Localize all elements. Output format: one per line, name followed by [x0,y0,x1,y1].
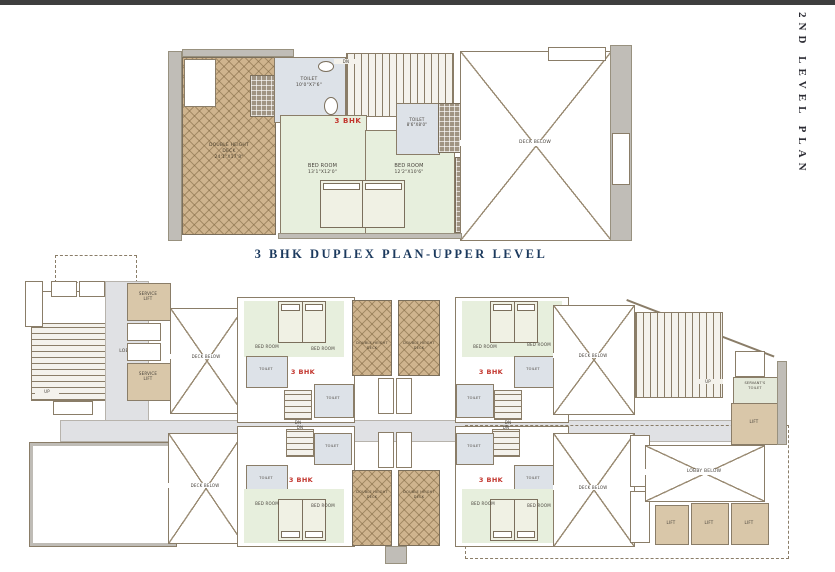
bedroom-text: BED ROOM [473,344,497,349]
shaft-window [396,378,412,414]
dashed-boundary-top-left [55,255,137,283]
staircase-dn [286,429,314,457]
deck-below-text: DECK BELOW [191,483,220,488]
lift-text: LIFT [705,520,714,525]
toilet-1-dim: 10'0"X7'6" [274,83,344,89]
second-level-plan: UP LOBBY SERVICE LIFT SERVICE LIFT DECK … [25,253,791,568]
lift-3-label: LIFT [731,520,767,525]
deck-text: DECK [352,495,392,500]
bedroom-text: BED ROOM [311,503,335,508]
bed [321,181,362,227]
unit-text: 3 BHK [479,476,503,484]
bed [514,302,538,342]
staircase-dn [492,429,520,457]
toilet-label: TOILET [514,476,552,481]
toilet-2 [396,103,440,155]
deck-below-text: DECK BELOW [519,140,551,145]
page-top-border [0,0,835,5]
central-stub-wall [385,546,407,564]
double-height-deck [398,300,440,376]
deck-below-top-left [170,308,244,414]
deck-dim: 24'1"X17'8" [182,155,276,161]
double-height-deck [352,470,392,546]
window [735,351,765,377]
unit-text: 3 BHK [335,117,362,125]
up-label-right: UP [693,379,723,384]
toilet-text: TOILET [326,396,339,400]
deck-below-top-right [553,305,635,415]
unit-3bhk-bottom-left: DN TOILET TOILET 3 BHK BED ROOM BED ROOM [237,426,355,547]
bedroom-text: BED ROOM [255,501,279,506]
wall-bottom [278,233,462,239]
dh-text: DOUBLE HEIGHT [398,341,440,346]
toilet-1-label: TOILET 10'0"X7'6" [274,77,344,89]
toilet-label: TOILET [456,444,492,449]
wall-top [182,49,294,57]
double-height-deck-label: DOUBLE HEIGHT DECK [352,490,392,499]
shaft-window [127,343,161,361]
bedroom-label: BED ROOM [296,503,350,508]
service-lift-1-label: SERVICE LIFT [127,291,169,301]
toilet-label: TOILET [514,367,552,372]
servants-toilet-label: SERVANT'S TOILET [733,381,777,390]
toilet [314,433,352,465]
staircase-dn [284,390,312,420]
shaft-window [378,432,394,468]
wall-left [168,51,182,241]
window-right [612,133,630,185]
unit-3bhk-top-left: BED ROOM BED ROOM TOILET 3 BHK TOILET DN [237,297,355,423]
bedroom-text: BED ROOM [527,342,551,347]
toilet [456,384,494,418]
window [79,281,105,297]
unit-label: 3 BHK [276,476,326,484]
lift-1-label: LIFT [655,520,687,525]
deck-below-void [460,51,612,241]
lift-text: LIFT [127,376,169,381]
dn-text: DN [297,425,303,430]
unit-text: 3 BHK [291,368,315,376]
dn-label: DN [334,59,358,64]
toilet-fixture [318,61,334,72]
service-lift-2 [127,363,171,401]
lift-text: LIFT [750,419,759,424]
bedroom-2-dim: 12'2"X10'6" [365,170,453,176]
window-top-right [548,47,606,61]
bedroom-label: BED ROOM [458,344,512,349]
lobby-below-label: LOBBY BELOW [645,469,763,475]
toilet-label: TOILET [314,444,350,449]
bedroom-label: BED ROOM [456,501,510,506]
deck-below-text: DECK BELOW [579,353,608,358]
bed [491,302,514,342]
upper-level-plan: DOUBLE HEIGHT DECK 24'1"X17'8" TOILET 10… [168,45,634,245]
bedroom-label: BED ROOM [240,501,294,506]
double-height-deck [398,470,440,546]
toilet [314,384,354,418]
sink-fixture [324,97,338,115]
beds-upper [320,180,405,228]
bed [279,302,302,342]
dn-text: DN [343,59,349,64]
up-label-left: UP [35,389,59,394]
dh-text: DOUBLE HEIGHT [352,341,392,346]
window [51,281,77,297]
shaft-window [396,432,412,468]
bedroom-label: BED ROOM [296,346,350,351]
bedroom-1-dim: 13'1"X12'0" [280,170,365,176]
unit-label: 3 BHK [466,476,516,484]
lift-text: LIFT [745,520,754,525]
dn-label: DN [492,425,520,430]
double-height-deck-label: DOUBLE HEIGHT DECK 24'1"X17'8" [182,143,276,161]
bed [302,302,326,342]
up-text: UP [705,379,711,384]
dh-text: DOUBLE HEIGHT [352,490,392,495]
deck-text: DECK [398,346,440,351]
deck-below-bottom-right-label: DECK BELOW [553,485,633,490]
service-lift-1 [127,283,171,321]
bedroom-text: BED ROOM [255,344,279,349]
window [25,281,43,327]
bedroom-text: BED ROOM [527,503,551,508]
toilet-text: TOILET [526,476,539,480]
double-height-deck [352,300,392,376]
double-height-deck-label: DOUBLE HEIGHT DECK [352,341,392,350]
deck-text: DECK [352,346,392,351]
bedroom-label: BED ROOM [240,344,294,349]
window-top-left [184,59,216,107]
dn-text: DN [503,425,509,430]
unit-text: 3 BHK [479,368,503,376]
bed [362,181,404,227]
staircase-dn [494,390,522,420]
window [53,401,93,415]
deck-below-text: DECK BELOW [579,485,608,490]
toilet-label: TOILET [456,396,492,401]
toilet-label: TOILET [314,396,352,401]
lift-2-label: LIFT [691,520,727,525]
dn-label: DN [286,425,314,430]
shaft-window [378,378,394,414]
toilet-text: TOILET [467,396,480,400]
beds [278,301,326,343]
bedroom-1-label: BED ROOM 13'1"X12'0" [280,163,365,175]
deck-text: DECK [398,495,440,500]
deck-below-top-right-label: DECK BELOW [553,353,633,358]
side-title: 2ND LEVEL PLAN [796,12,808,182]
toilet [514,356,554,388]
unit-label: 3 BHK [278,368,328,376]
toilet-text: TOILET [325,444,338,448]
bedroom-text: BED ROOM [311,346,335,351]
toilet-2-dim: 8'6"X8'0" [396,122,438,127]
deck-below-top-left-label: DECK BELOW [170,354,242,359]
wall-right-edge [777,361,787,445]
deck-below-label: DECK BELOW [460,140,610,146]
dh-text: DOUBLE HEIGHT [398,490,440,495]
toilet-text: TOILET [733,386,777,391]
lift-right-label: LIFT [731,419,777,424]
up-text: UP [44,389,50,394]
unit-3bhk-top-right: BED ROOM BED ROOM TOILET 3 BHK TOILET DN [455,297,569,423]
deck-below-bottom-left-label: DECK BELOW [168,483,242,488]
unit-label: 3 BHK [466,368,516,376]
lobby-below-text: LOBBY BELOW [687,469,721,474]
toilet [456,433,494,465]
unit-3bhk-bottom-right: DN TOILET TOILET 3 BHK BED ROOM BED ROOM [455,426,569,547]
lift-text: LIFT [667,520,676,525]
service-lift-2-label: SERVICE LIFT [127,371,169,381]
unit-text: 3 BHK [289,476,313,484]
deck-below-text: DECK BELOW [192,354,221,359]
bedroom-2-label: BED ROOM 12'2"X10'6" [365,163,453,175]
deck-below-bottom-left [168,433,244,544]
lift-text: LIFT [127,296,169,301]
toilet-text: TOILET [526,367,539,371]
unit-label-upper: 3 BHK [318,117,378,126]
room-bottom-left [30,443,176,546]
beds [490,301,538,343]
toilet-text: TOILET [467,444,480,448]
staircase-up-right [635,312,723,398]
double-height-deck-label: DOUBLE HEIGHT DECK [398,490,440,499]
bedroom-text: BED ROOM [471,501,495,506]
toilet-text: TOILET [259,367,272,371]
double-height-deck-label: DOUBLE HEIGHT DECK [398,341,440,350]
toilet-2-label: TOILET 8'6"X8'0" [396,117,438,127]
shaft-window [127,323,161,341]
toilet-text: TOILET [259,476,272,480]
